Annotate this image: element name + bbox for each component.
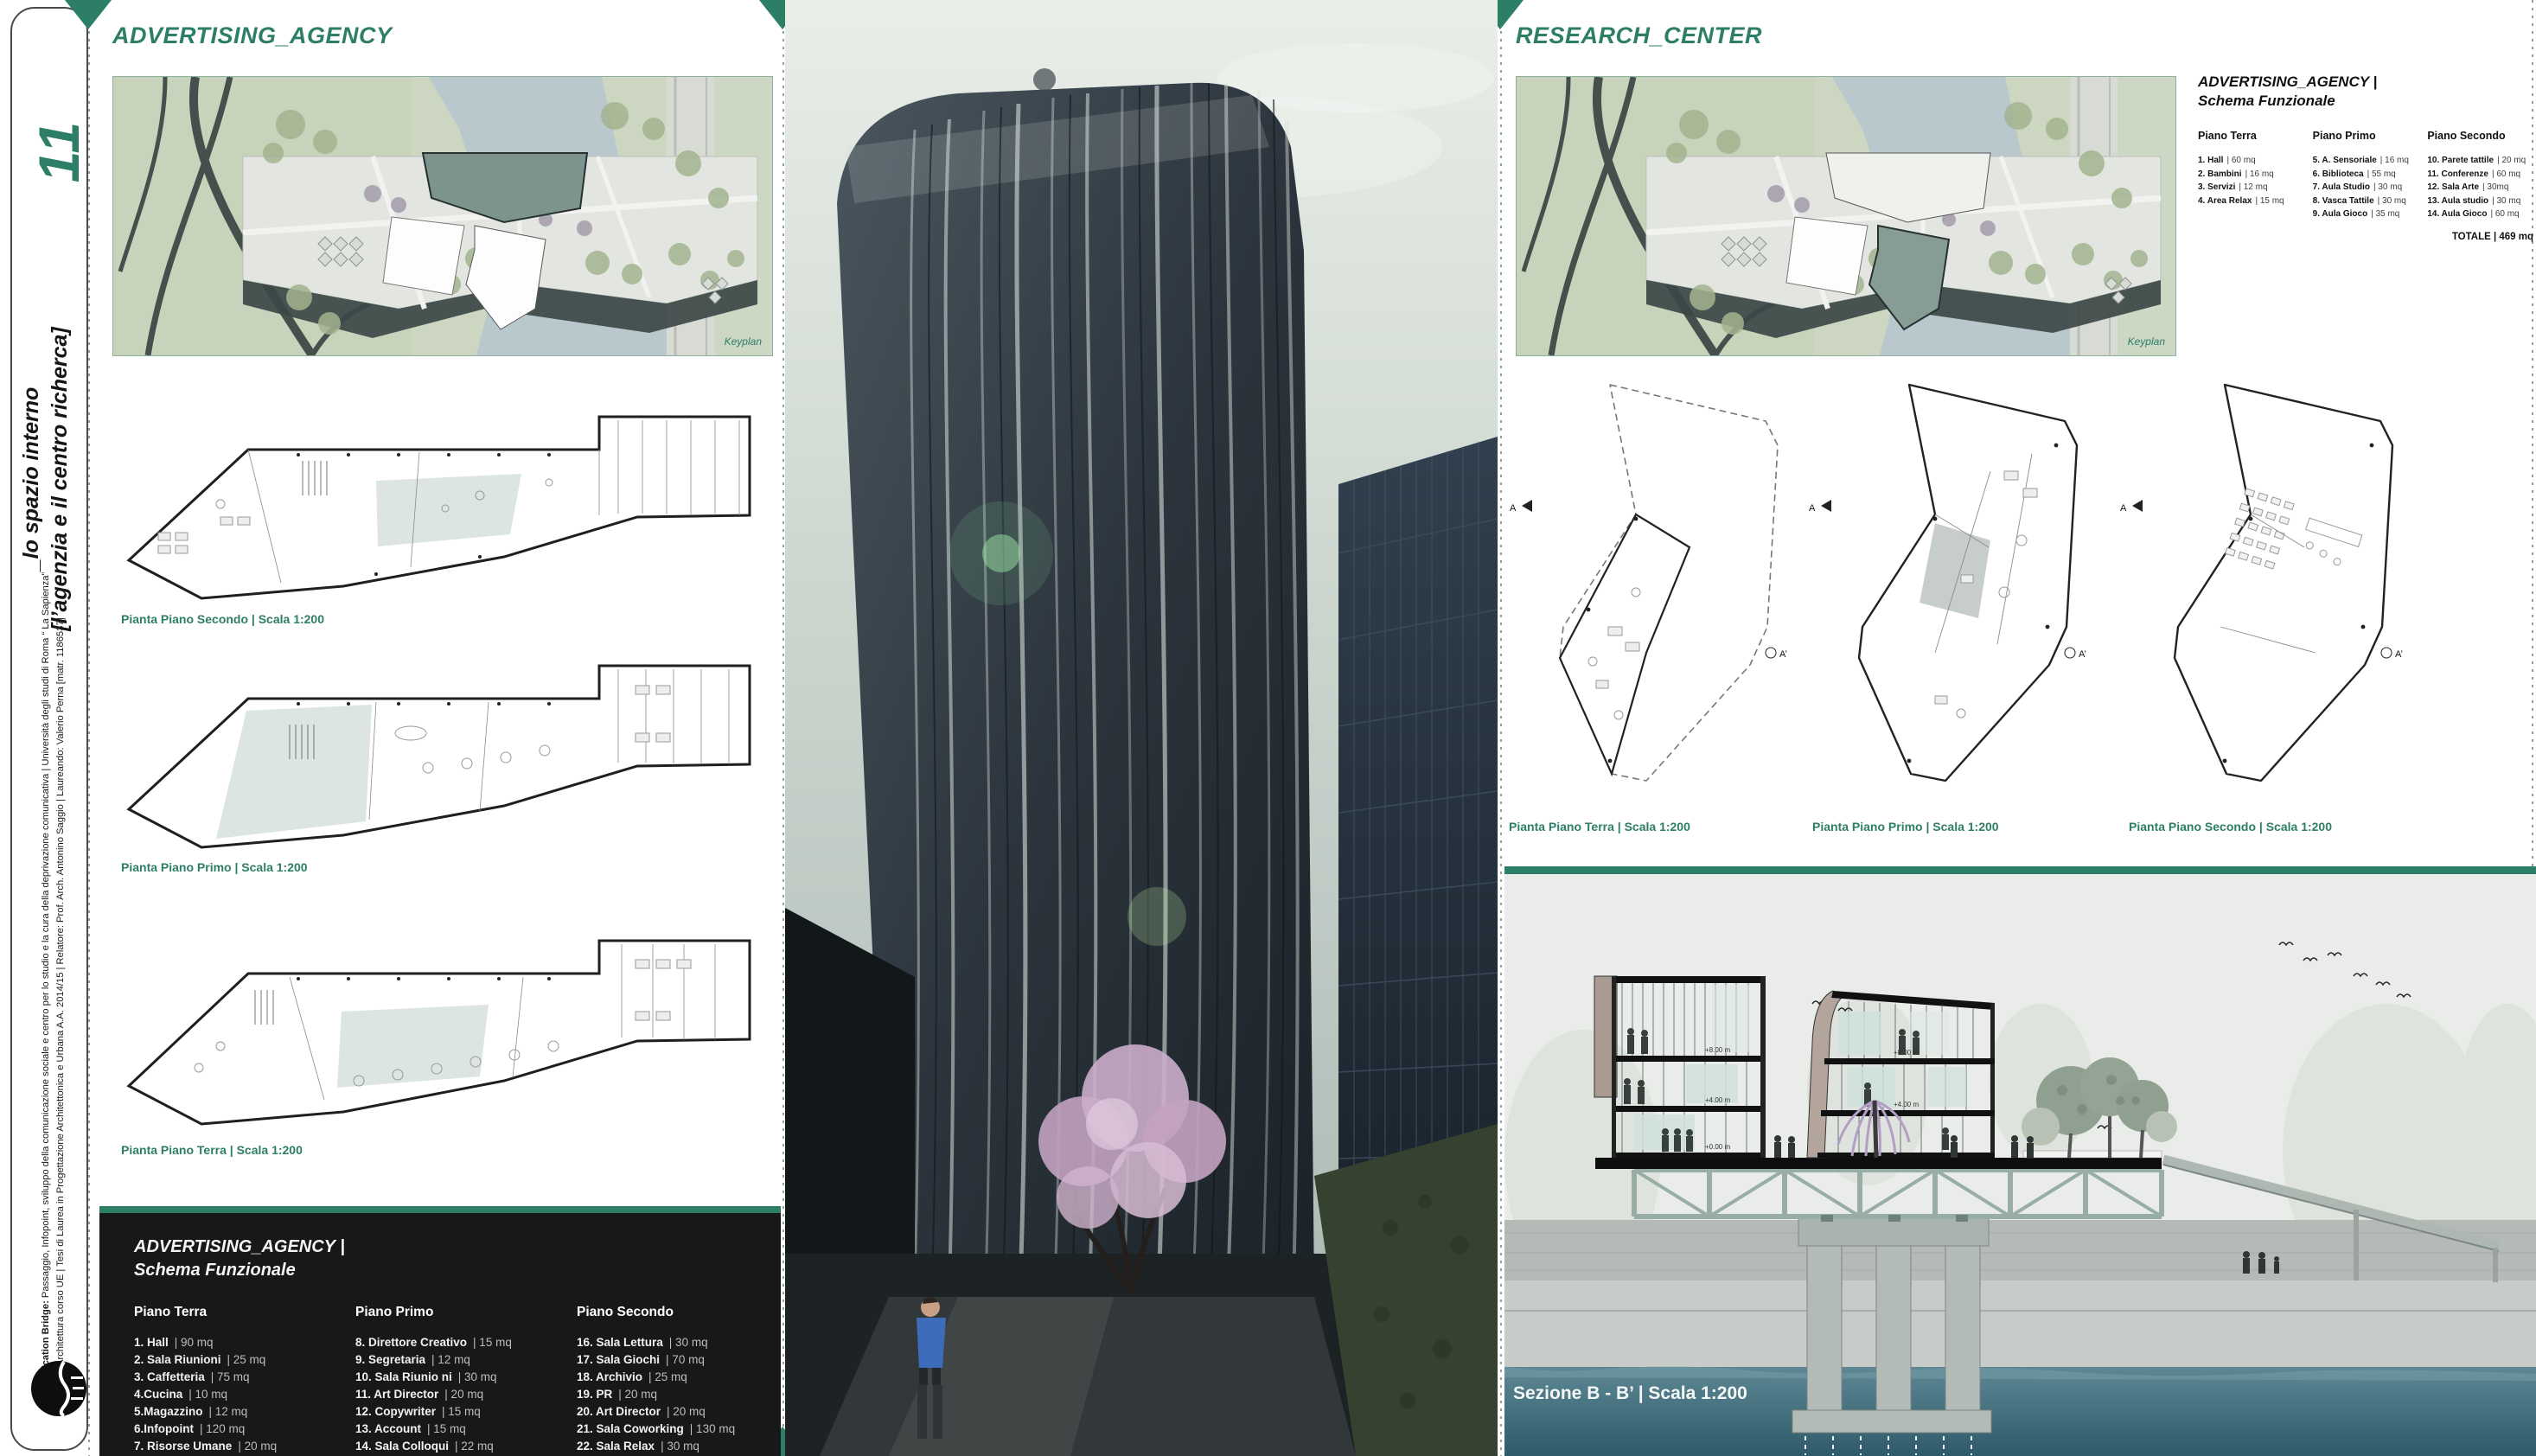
schema-item: 8. Direttore Creativo| 15 mq [355,1334,537,1351]
schema-right-col-secondo: Piano Secondo 10. Parete tattile| 20 mq1… [2427,130,2533,242]
schema-right-primo-list: 5. A. Sensoriale| 16 mq6. Biblioteca| 55… [2313,154,2419,221]
schema-item: 7. Aula Studio| 30 mq [2313,181,2419,195]
credits-line2: Facoltà di Architettura corso UE | Tesi … [54,492,68,1410]
left-section-title: ADVERTISING_AGENCY [112,22,393,49]
schema-item: 17. Sala Giochi| 70 mq [577,1351,758,1369]
keyplan-right-drawing: Keyplan [1517,77,2175,355]
credits-line1: Communication Bridge: Passaggio, Infopoi… [39,492,54,1410]
separator-center-right [1500,0,1502,1456]
schema-item: 10. Sala Riunio ni| 30 mq [355,1369,537,1386]
schema-item: 20. Art Director| 20 mq [577,1403,758,1421]
schema-item: 11. Art Director| 20 mq [355,1386,537,1403]
section-marker-a: A [1510,503,1517,514]
schema-item: 16. Sala Lettura| 30 mq [577,1334,758,1351]
plan-label-primo-right: Pianta Piano Primo | Scala 1:200 [1812,820,1999,833]
schema-item: 9. Aula Gioco| 35 mq [2313,208,2419,221]
floor-plan-primo-left [117,638,763,854]
thesis-logo-icon [29,1359,88,1418]
section-drawing: +8.00 m +4.00 m +0.00 m [1504,874,2536,1456]
section-marker-a-prime: A’ [2395,649,2403,660]
section-marker-a-prime: A’ [1779,649,1787,660]
floor-plan-secondo-left [117,387,763,608]
keyplan-right-label: Keyplan [2128,335,2166,348]
plan-label-terra-right: Pianta Piano Terra | Scala 1:200 [1509,820,1690,833]
plan-label-secondo-right: Pianta Piano Secondo | Scala 1:200 [2129,820,2332,833]
floor-plan-secondo-right-drawing: A A’ [2117,367,2415,813]
building-render [785,0,1498,1456]
schema-box-accent-bar [99,1206,781,1213]
schema-item: 3. Servizi| 12 mq [2198,181,2304,195]
plan-label-secondo-left: Pianta Piano Secondo | Scala 1:200 [121,612,324,626]
schema-box-left: ADVERTISING_AGENCY | Schema Funzionale P… [99,1206,781,1456]
level-tag: +8.00 m [1705,1046,1730,1054]
sidebar-credits: Communication Bridge: Passaggio, Infopoi… [39,492,77,1410]
render-drawing [785,0,1498,1456]
schema-right-col-terra: Piano Terra 1. Hall| 60 mq2. Bambini| 16… [2198,130,2304,242]
schema-item: 14. Sala Colloqui| 22 mq [355,1438,537,1455]
schema-item: 4.Cucina| 10 mq [134,1386,316,1403]
schema-item: 13. Account| 15 mq [355,1421,537,1438]
schema-item: 12. Sala Arte| 30mq [2427,181,2533,195]
right-section-title: RESEARCH_CENTER [1516,22,1762,49]
diamond-marker-top-1 [65,0,112,29]
plan-label-terra-left: Pianta Piano Terra | Scala 1:200 [121,1143,303,1157]
floor-plan-terra-right-drawing: A A’ [1506,367,1796,813]
schema-item: 6. Biblioteca| 55 mq [2313,168,2419,182]
level-tag: +4.00 m [1894,1101,1919,1108]
keyplan-right: Keyplan [1516,76,2176,356]
section-panel: +8.00 m +4.00 m +0.00 m [1504,866,2536,1456]
schema-item: 9. Segretaria| 12 mq [355,1351,537,1369]
sidebar: 11 _lo spazio interno [l’agenzia e il ce… [10,7,88,1451]
level-tag: +0.00 m [1705,1143,1730,1151]
section-marker-a-prime: A’ [2079,649,2086,660]
plan-label-primo-left: Pianta Piano Primo | Scala 1:200 [121,860,308,874]
floor-plan-primo-right-drawing: A A’ [1805,367,2095,813]
schema-item: 5.Magazzino| 12 mq [134,1403,316,1421]
schema-item: 5. A. Sensoriale| 16 mq [2313,154,2419,168]
floor-plan-terra-drawing [117,908,763,1134]
schema-item: 14. Aula Gioco| 60 mq [2427,208,2533,221]
keyplan-left-drawing: Keyplan [113,77,772,355]
schema-left-secondo-list: 16. Sala Lettura| 30 mq17. Sala Giochi| … [577,1334,758,1455]
schema-left-col-terra: Piano Terra 1. Hall| 90 mq2. Sala Riunio… [134,1305,316,1456]
schema-item: 12. Copywriter| 15 mq [355,1403,537,1421]
schema-item: 1. Hall| 60 mq [2198,154,2304,168]
page-number: 11 [20,56,98,246]
keyplan-left: Keyplan [112,76,773,356]
schema-left-terra-list: 1. Hall| 90 mq2. Sala Riunioni| 25 mq3. … [134,1334,316,1456]
schema-item: 22. Sala Relax| 30 mq [577,1438,758,1455]
schema-item: 10. Parete tattile| 20 mq [2427,154,2533,168]
schema-item: 21. Sala Coworking| 130 mq [577,1421,758,1438]
schema-left-primo-list: 8. Direttore Creativo| 15 mq9. Segretari… [355,1334,537,1456]
floor-plan-terra-left [117,908,763,1134]
schema-item: 1. Hall| 90 mq [134,1334,316,1351]
section-marker-a: A [1809,503,1816,514]
keyplan-left-label: Keyplan [725,335,763,348]
schema-item: 11. Conferenze| 60 mq [2427,168,2533,182]
schema-right-secondo-list: 10. Parete tattile| 20 mq11. Conferenze|… [2427,154,2533,221]
separator-left-center [783,0,784,1456]
schema-item: 19. PR| 20 mq [577,1386,758,1403]
schema-item: 3. Caffetteria| 75 mq [134,1369,316,1386]
floor-plan-secondo-right: A A’ [2117,367,2415,813]
schema-item: 2. Sala Riunioni| 25 mq [134,1351,316,1369]
schema-item: 8. Vasca Tattile| 30 mq [2313,195,2419,208]
floor-plan-terra-right: A A’ [1506,367,1796,813]
schema-item: 7. Risorse Umane| 20 mq [134,1438,316,1455]
section-marker-a: A [2120,503,2127,514]
level-tag: +4.00 m [1705,1096,1730,1104]
schema-right-total: TOTALE | 469 mq [2427,232,2533,242]
floor-plan-primo-right: A A’ [1805,367,2095,813]
schema-right-terra-list: 1. Hall| 60 mq2. Bambini| 16 mq3. Serviz… [2198,154,2304,208]
schema-right-col-primo: Piano Primo 5. A. Sensoriale| 16 mq6. Bi… [2313,130,2419,242]
schema-right-title: ADVERTISING_AGENCY | Schema Funzionale [2198,73,2533,111]
level-tag: +8.00 m [1894,1049,1919,1057]
floor-plan-secondo-drawing [117,387,763,608]
schema-item: 18. Archivio| 25 mq [577,1369,758,1386]
section-label: Sezione B - B’ | Scala 1:200 [1513,1383,1747,1404]
section-accent-bar [1504,866,2536,874]
schema-item: 4. Area Relax| 15 mq [2198,195,2304,208]
schema-left-col-secondo: Piano Secondo 16. Sala Lettura| 30 mq17.… [577,1305,758,1456]
schema-item: 13. Aula studio| 30 mq [2427,195,2533,208]
floor-plan-primo-drawing [117,638,763,854]
schema-left-col-primo: Piano Primo 8. Direttore Creativo| 15 mq… [355,1305,537,1456]
presentation-board: 11 _lo spazio interno [l’agenzia e il ce… [0,0,2536,1456]
separator-sidebar [88,0,90,1456]
schema-item: 6.Infopoint| 120 mq [134,1421,316,1438]
schema-table-right: ADVERTISING_AGENCY | Schema Funzionale P… [2198,73,2533,242]
schema-item: 2. Bambini| 16 mq [2198,168,2304,182]
schema-left-title: ADVERTISING_AGENCY | Schema Funzionale [134,1236,758,1282]
